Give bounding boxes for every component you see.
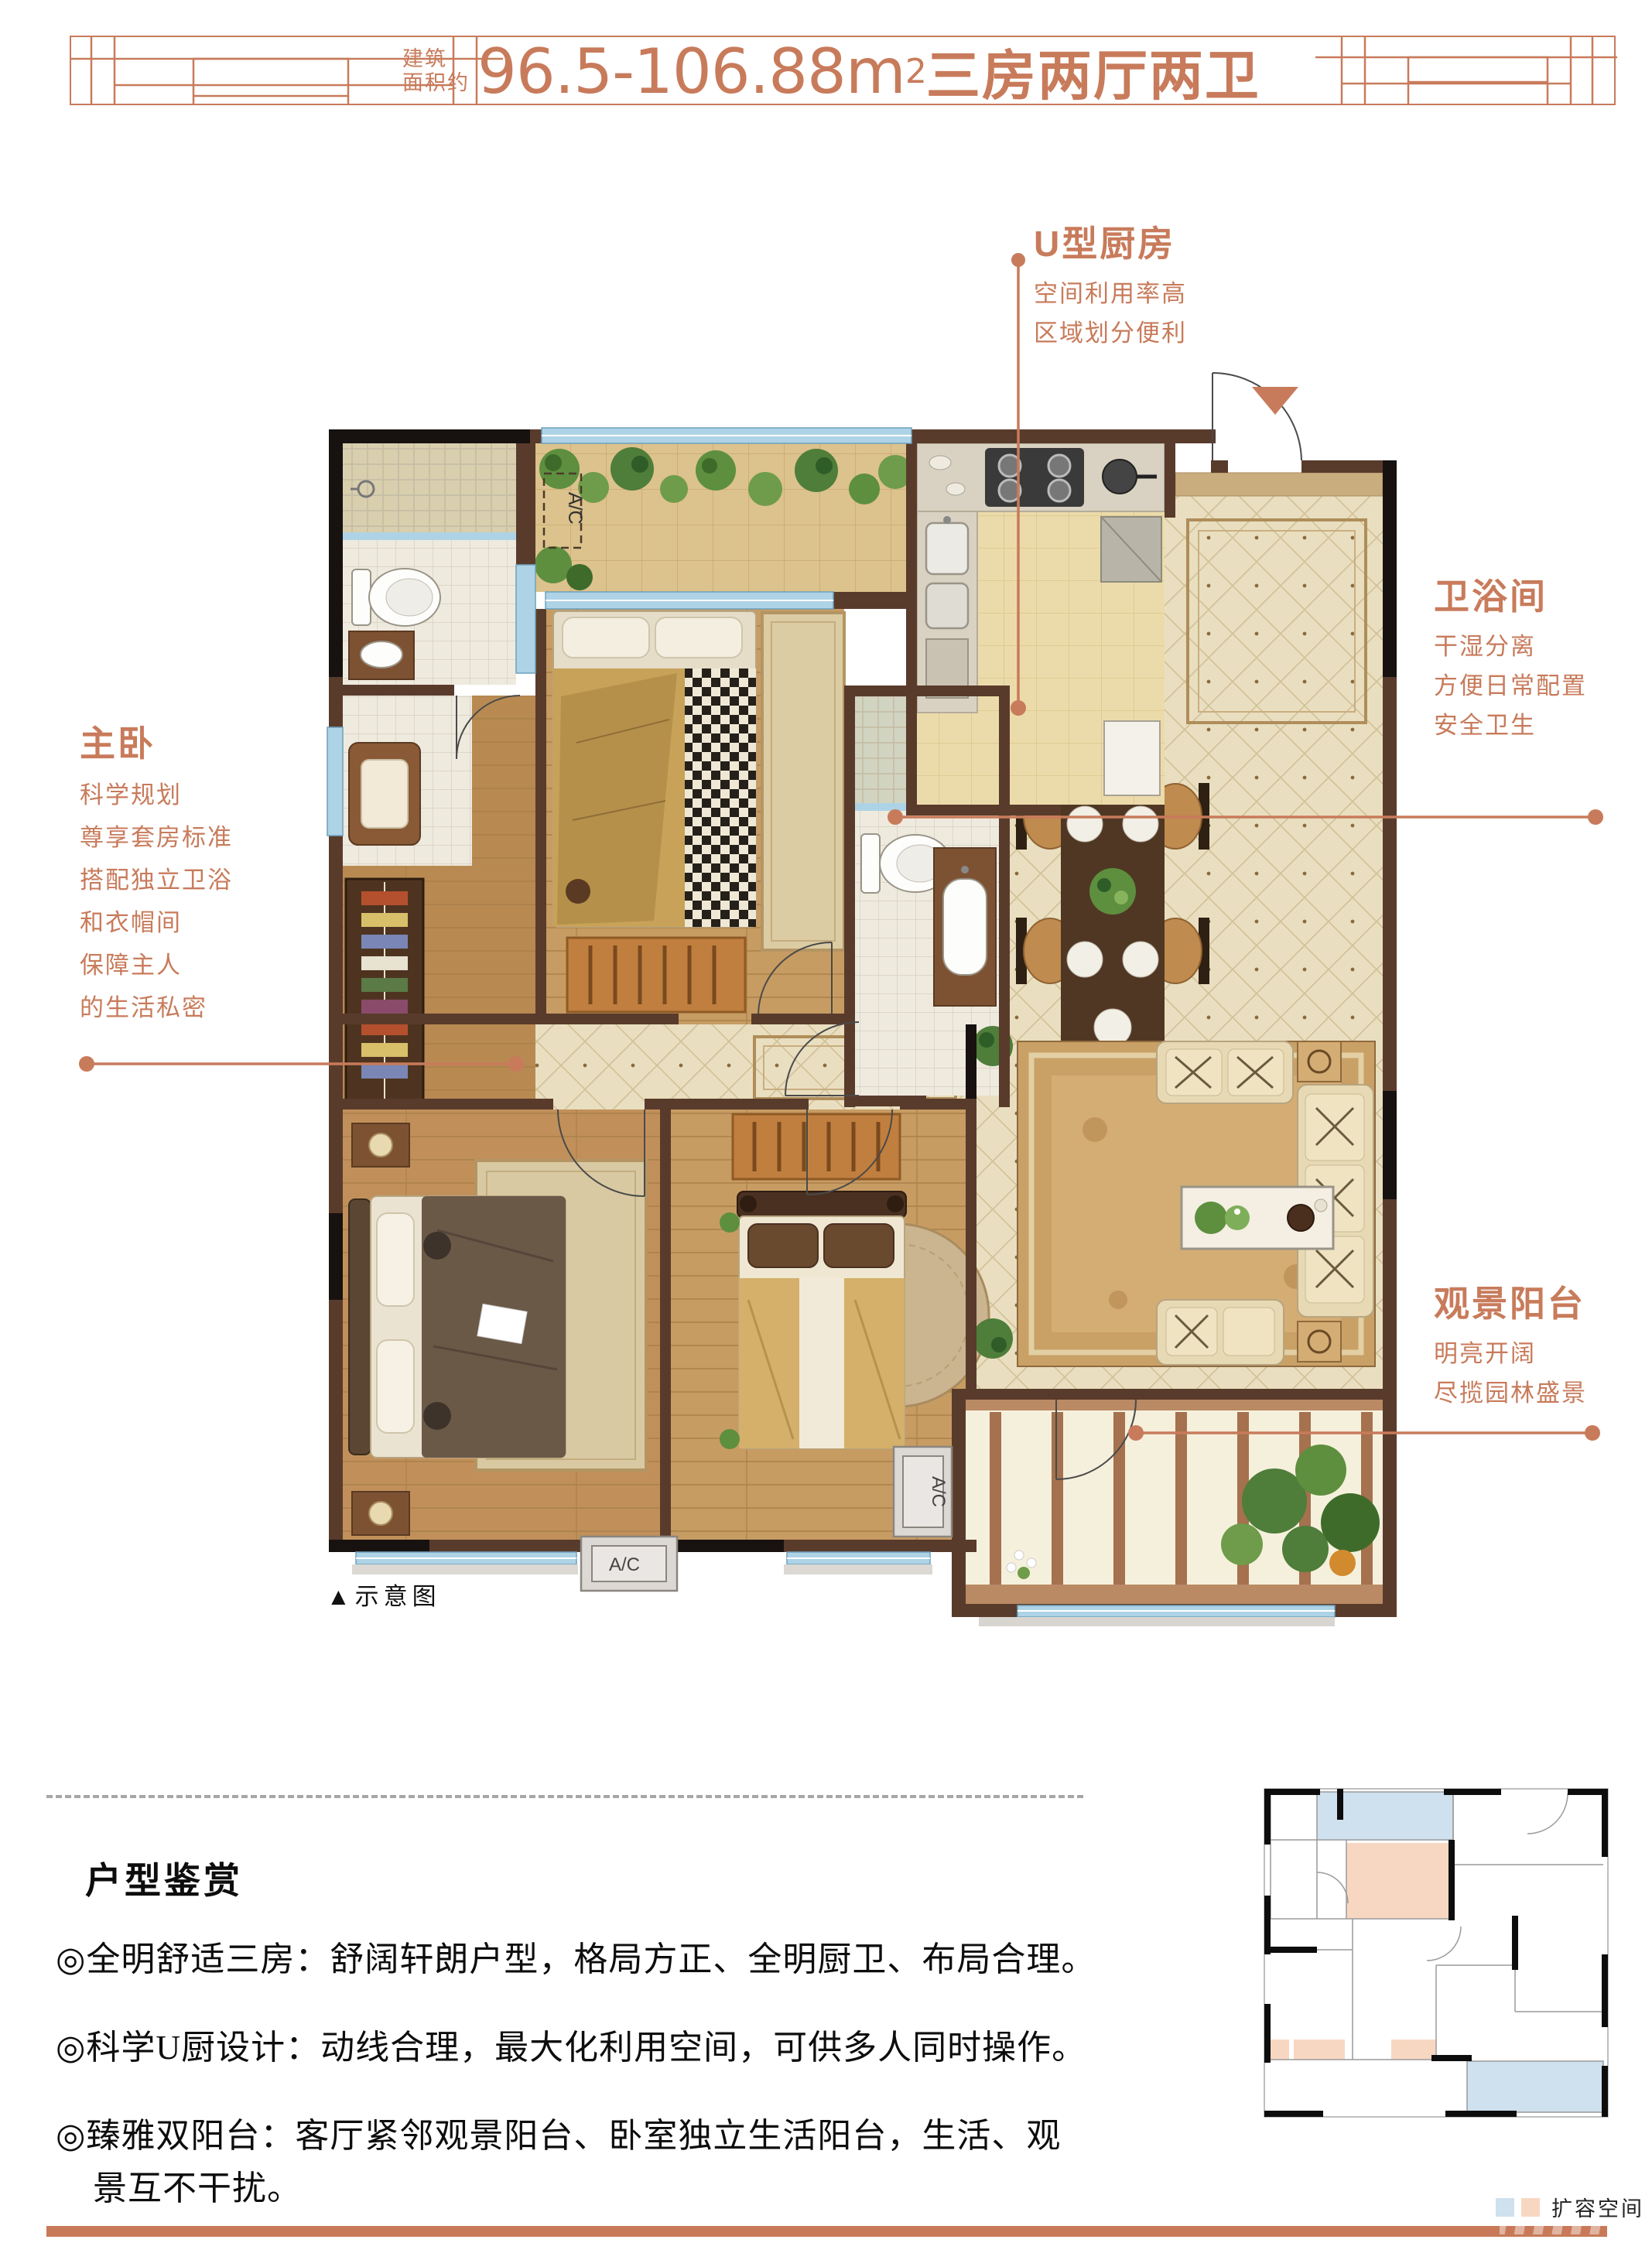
floor-plan: A/C — [321, 364, 1404, 1626]
callout-line: 保障主人 — [80, 944, 233, 986]
expansion-strip-pink — [1391, 2039, 1436, 2060]
callout-line: 明亮开阔 — [1434, 1334, 1587, 1373]
bed-2 — [349, 1196, 566, 1458]
balcony-sill — [979, 1617, 1335, 1626]
bed-3 — [737, 1192, 906, 1448]
expansion-strip-pink — [1294, 2039, 1345, 2060]
callout-line: 科学规划 — [80, 774, 233, 816]
review-bullet: ◎臻雅双阳台：客厅紧邻观景阳台、卧室独立生活阳台，生活、观 — [56, 2108, 1061, 2157]
callout-line: 空间利用率高 — [1034, 274, 1187, 313]
area-label-line2: 面积约 — [402, 71, 470, 95]
master-suite-bedroom — [546, 609, 844, 1024]
review-bullet: ◎全明舒适三房：舒阔轩朗户型，格局方正、全明厨卫、布局合理。 — [56, 1931, 1096, 1981]
view-balcony — [966, 1400, 1383, 1604]
kitchen-sink-counter — [917, 511, 977, 713]
life-balcony: A/C — [535, 443, 912, 592]
plan-caption: ▲示意图 — [327, 1577, 441, 1612]
expansion-area-blue — [1467, 2061, 1603, 2112]
svg-text:A/C: A/C — [609, 1554, 640, 1575]
dressing-armchair — [349, 743, 420, 845]
ensuite-vanity — [349, 631, 414, 679]
coffee-table — [1182, 1187, 1333, 1249]
callout-line: 区域划分便利 — [1034, 313, 1187, 353]
armchair — [1157, 1300, 1284, 1365]
expansion-area-pink — [1346, 1843, 1455, 1919]
callout-title: 卫浴间 — [1434, 579, 1587, 614]
plant-icon — [973, 1318, 1013, 1359]
callout-title: U型厨房 — [1034, 226, 1187, 262]
layout-text: 三房两厅两卫 — [926, 32, 1260, 111]
expansion-legend: 扩容空间 — [1496, 2192, 1644, 2222]
callout-title: 观景阳台 — [1434, 1286, 1587, 1321]
callout-line: 尽揽园林盛景 — [1434, 1373, 1587, 1413]
header-right-ornament — [1315, 36, 1617, 105]
area-superscript: 2 — [905, 52, 926, 91]
ac-unit-balcony-left: A/C — [894, 1447, 952, 1537]
svg-text:A/C: A/C — [928, 1476, 949, 1507]
callout-view-balcony: 观景阳台 明亮开阔 尽揽园林盛景 — [1434, 1286, 1587, 1413]
expansion-strip-pink — [1271, 2039, 1289, 2060]
window-sill — [784, 1564, 932, 1574]
master-bed — [553, 611, 756, 927]
stove-icon — [985, 448, 1084, 507]
callout-line: 和衣帽间 — [80, 901, 233, 944]
toilet-icon — [352, 569, 440, 626]
review-bullet-continuation: 景互不干扰。 — [93, 2160, 302, 2210]
review-title: 户型鉴赏 — [85, 1851, 243, 1904]
callout-title: 主卧 — [80, 726, 233, 761]
callout-line: 的生活私密 — [80, 986, 233, 1029]
callout-u-kitchen: U型厨房 空间利用率高 区域划分便利 — [1034, 226, 1187, 353]
bottom-accent-bar — [46, 2226, 1607, 2237]
callout-line: 尊享套房标准 — [80, 816, 233, 859]
pan-icon — [1103, 460, 1137, 494]
dashed-divider — [46, 1795, 1083, 1798]
living-room — [973, 1026, 1375, 1366]
legend-pink-swatch — [1521, 2198, 1540, 2217]
callout-line: 搭配独立卫浴 — [80, 859, 233, 901]
bathroom-vanity — [934, 848, 996, 1006]
callout-line: 安全卫生 — [1434, 706, 1587, 745]
header-title: 建筑 面积约 96.5-106.88m2三房两厅两卫 — [402, 34, 1260, 108]
mini-floor-plan — [1260, 1772, 1614, 2135]
walk-in-closet — [343, 696, 535, 1109]
floorplan-poster-page: 建筑 面积约 96.5-106.88m2三房两厅两卫 — [0, 0, 1652, 2260]
kitchen — [917, 443, 1165, 805]
bedroom-bench — [567, 938, 745, 1012]
area-label: 建筑 面积约 — [402, 47, 470, 95]
kitchen-cabinet — [1104, 721, 1160, 795]
wardrobe — [346, 879, 423, 1102]
area-label-line1: 建筑 — [402, 47, 470, 71]
callout-line: 干湿分离 — [1434, 627, 1587, 666]
window-sill — [352, 1564, 578, 1574]
review-bullet: ◎科学U厨设计：动线合理，最大化利用空间，可供多人同时操作。 — [56, 2019, 1086, 2069]
bedroom-2 — [343, 1109, 660, 1540]
loveseat — [1157, 1041, 1293, 1103]
legend-label: 扩容空间 — [1551, 2192, 1644, 2222]
area-value: 96.5-106.88m — [477, 36, 905, 108]
callout-master-bedroom: 主卧 科学规划 尊享套房标准 搭配独立卫浴 和衣帽间 保障主人 的生活私密 — [80, 726, 233, 1029]
ensuite-bathroom — [343, 443, 516, 685]
ac-unit-bottom: A/C — [581, 1537, 677, 1591]
wardrobe-2 — [733, 1114, 900, 1179]
callout-bathroom: 卫浴间 干湿分离 方便日常配置 安全卫生 — [1434, 579, 1587, 745]
callout-line: 方便日常配置 — [1434, 666, 1587, 706]
svg-text:A/C: A/C — [564, 492, 586, 525]
legend-blue-swatch — [1496, 2198, 1514, 2217]
